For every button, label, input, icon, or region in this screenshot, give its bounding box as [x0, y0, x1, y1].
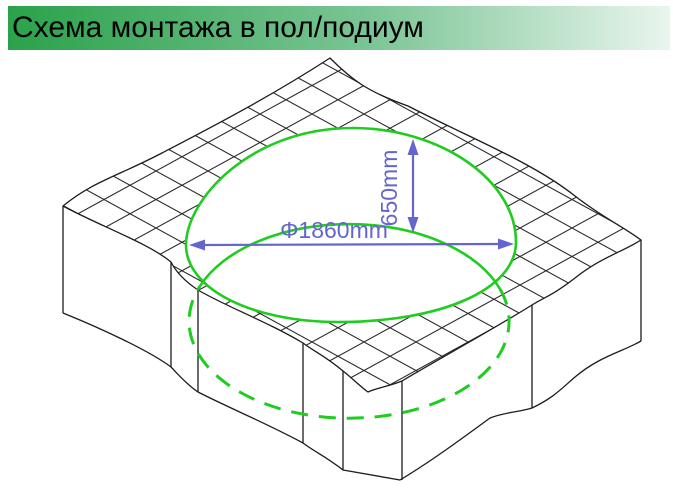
- arrowhead-right: [498, 239, 514, 250]
- dimension-offset: 650mm: [376, 139, 419, 233]
- diameter-label: Φ1860mm: [280, 217, 388, 243]
- installation-diagram: Φ1860mm 650mm: [0, 0, 673, 499]
- arrowhead-up: [408, 139, 419, 155]
- dimension-diameter: Φ1860mm: [189, 217, 514, 251]
- offset-label: 650mm: [376, 150, 402, 227]
- arrowhead-left: [189, 240, 205, 251]
